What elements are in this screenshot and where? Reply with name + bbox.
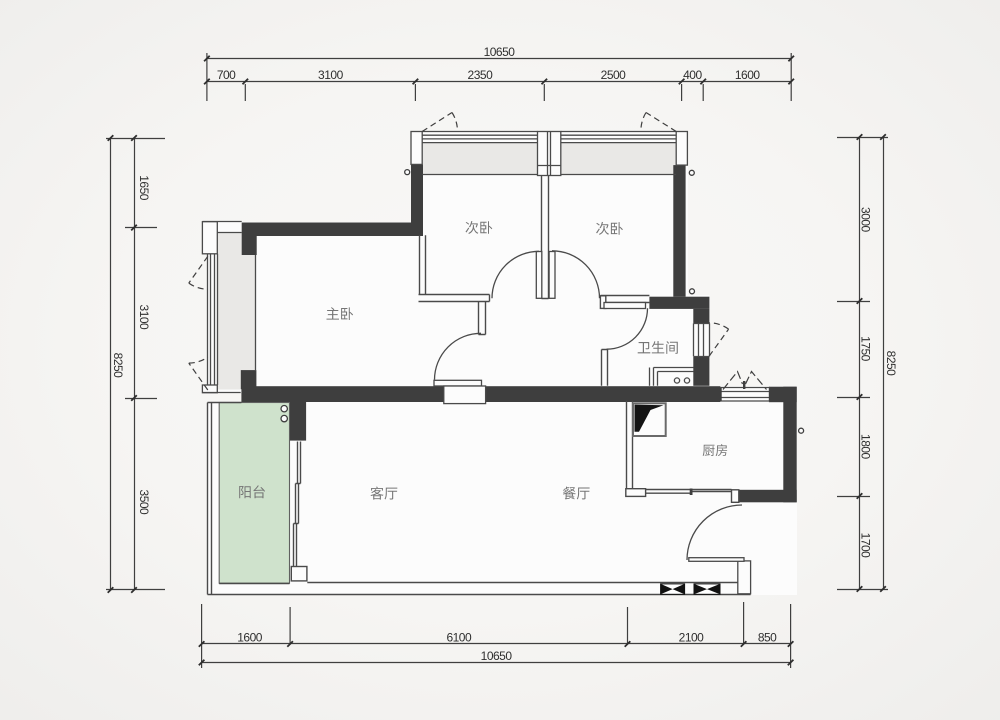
svg-text:400: 400 xyxy=(683,68,702,82)
svg-text:1600: 1600 xyxy=(735,68,761,82)
svg-text:2100: 2100 xyxy=(679,631,705,645)
svg-text:6100: 6100 xyxy=(446,631,472,645)
svg-text:10650: 10650 xyxy=(481,649,513,663)
svg-text:10650: 10650 xyxy=(484,45,516,59)
svg-text:1800: 1800 xyxy=(859,434,873,460)
svg-text:1750: 1750 xyxy=(859,336,873,362)
svg-text:8250: 8250 xyxy=(111,353,125,379)
svg-text:3000: 3000 xyxy=(859,207,873,233)
svg-text:8250: 8250 xyxy=(884,351,898,377)
svg-text:3500: 3500 xyxy=(137,490,151,516)
svg-text:700: 700 xyxy=(217,68,236,82)
svg-text:2500: 2500 xyxy=(601,68,627,82)
svg-text:2350: 2350 xyxy=(468,68,494,82)
svg-text:1650: 1650 xyxy=(137,175,151,201)
svg-text:850: 850 xyxy=(758,631,777,645)
svg-text:3100: 3100 xyxy=(318,68,344,82)
svg-text:1600: 1600 xyxy=(237,631,263,645)
svg-text:3100: 3100 xyxy=(137,305,151,331)
svg-text:1700: 1700 xyxy=(859,533,873,559)
